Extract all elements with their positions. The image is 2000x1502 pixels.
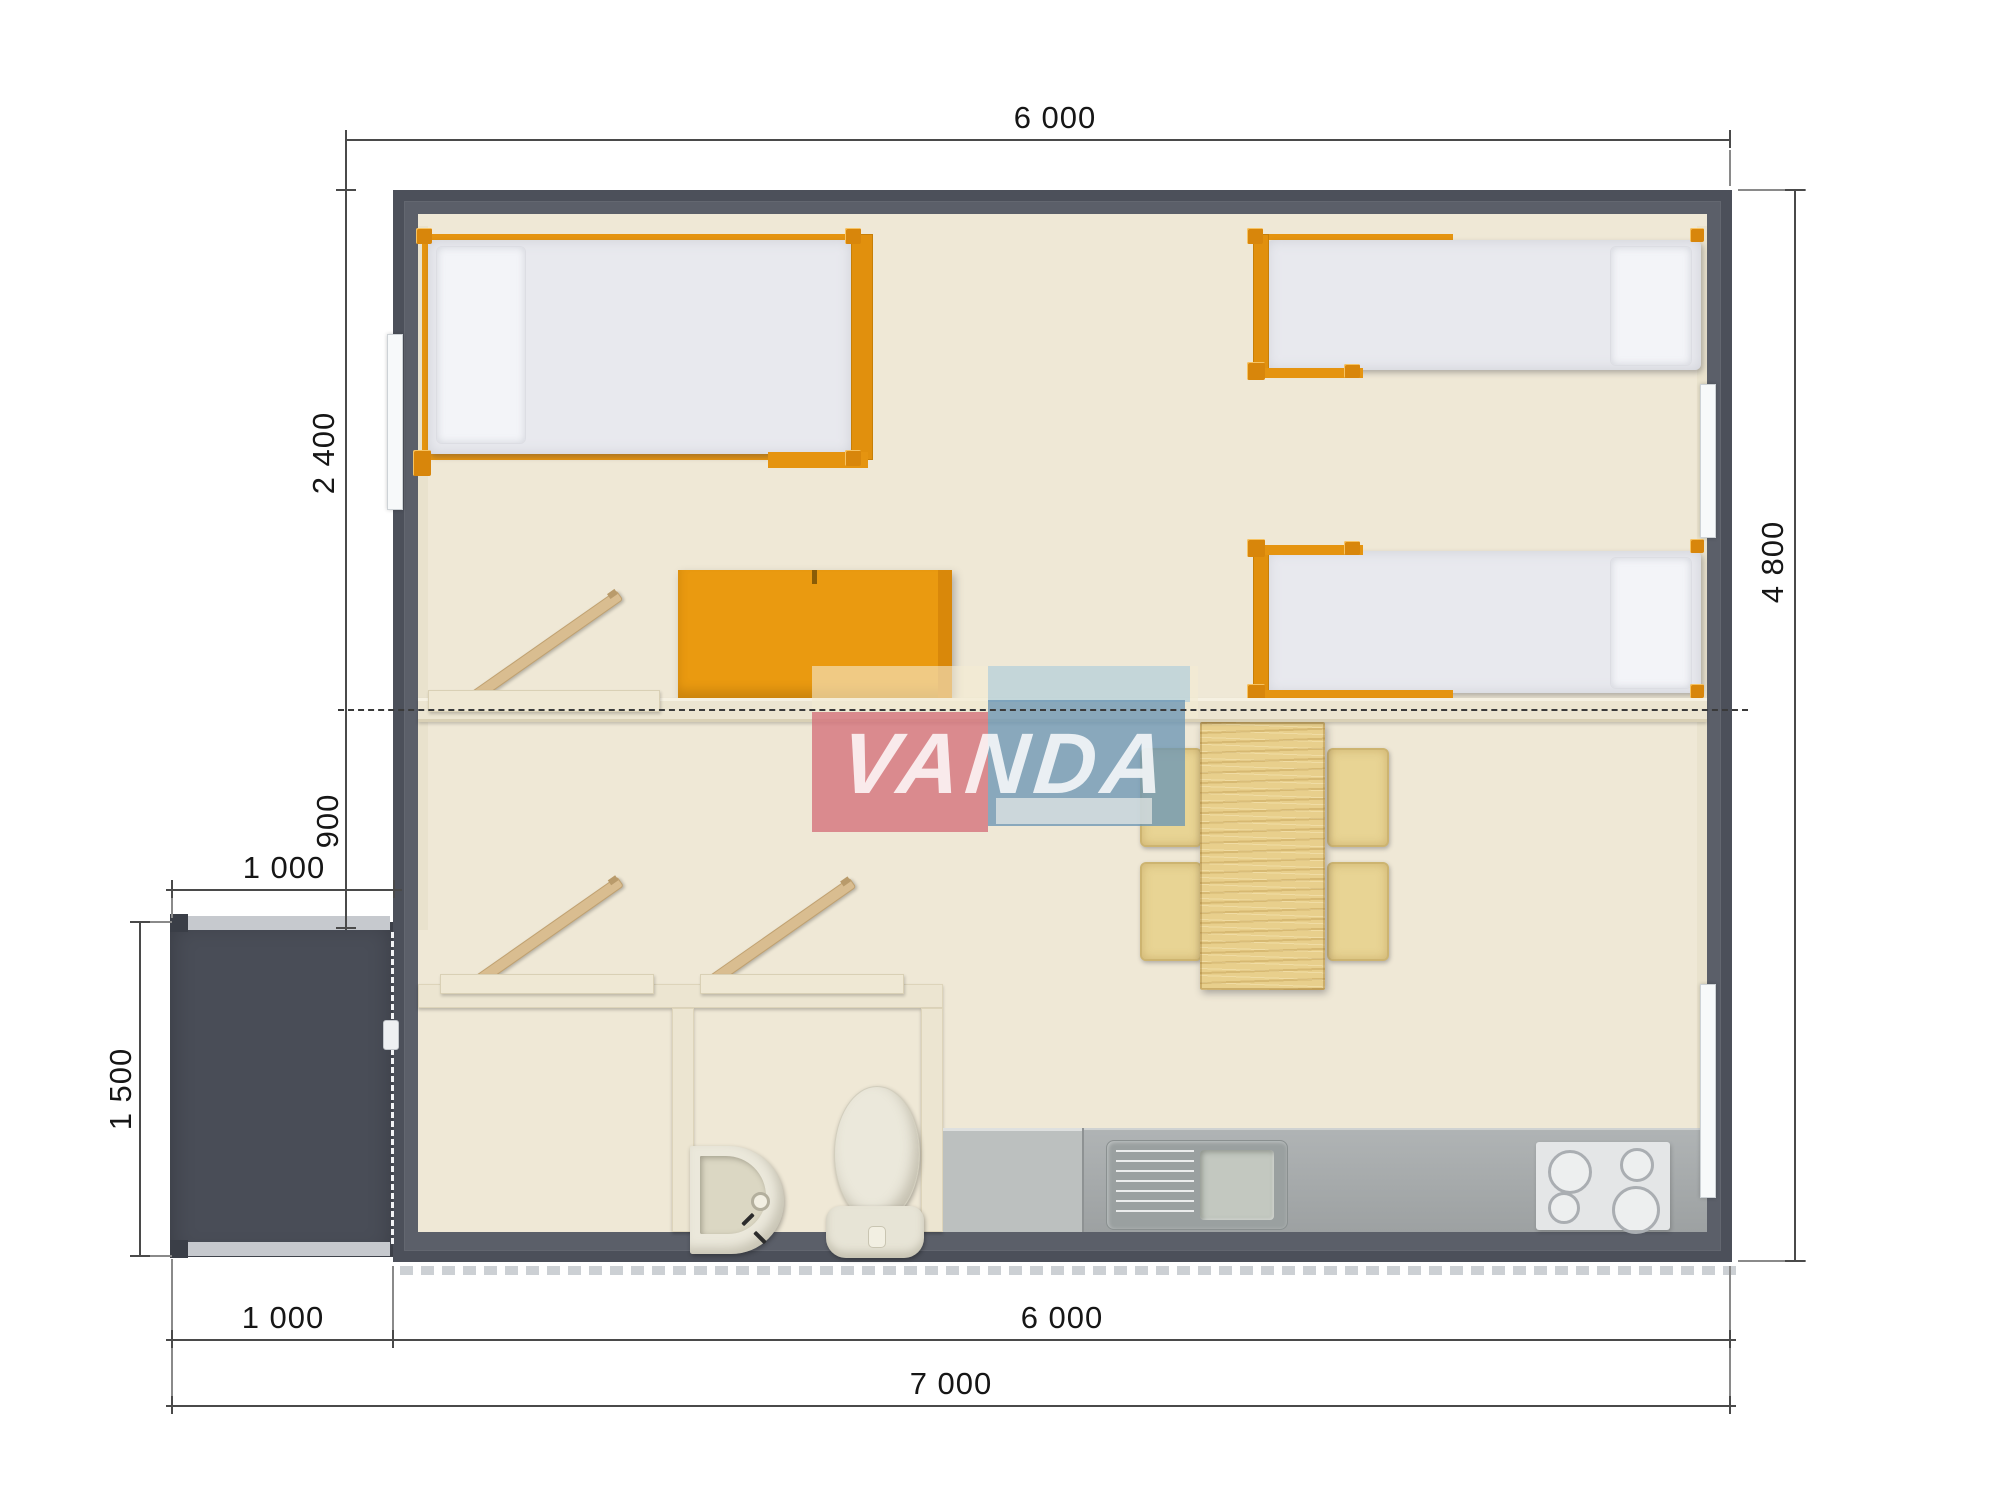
- chair: [1327, 748, 1389, 847]
- dim-line-left-chain: [345, 139, 347, 930]
- dim-tick: [171, 880, 173, 898]
- burner-icon: [1548, 1192, 1580, 1224]
- bed-post: [1247, 539, 1265, 557]
- kitchen-sink-basin: [1200, 1150, 1274, 1220]
- section-reference-dashed-line: [338, 709, 1748, 711]
- chair: [1327, 862, 1389, 961]
- porch-bottom-sill: [178, 1242, 390, 1256]
- dim-tick: [171, 1396, 173, 1414]
- right-wall-window-upper: [1700, 384, 1716, 538]
- toilet-flush-button: [868, 1226, 886, 1248]
- dim-line-right: [1794, 190, 1796, 1262]
- bed-footboard: [1253, 234, 1269, 376]
- bed-post: [1247, 228, 1263, 244]
- right-wall-window-lower: [1700, 984, 1716, 1198]
- bed-post: [845, 450, 861, 466]
- bed-footboard: [1253, 545, 1269, 700]
- dim-line-bottom-chain: [166, 1339, 1736, 1341]
- dim-tick: [130, 1255, 150, 1257]
- bed-footboard: [851, 234, 873, 460]
- dim-tick: [171, 1330, 173, 1348]
- dim-tick: [336, 927, 356, 929]
- porch-corner-post-bottom: [170, 1240, 188, 1258]
- watermark-lightblue-band: [988, 666, 1190, 702]
- dim-label-bottom-main: 6 000: [962, 1300, 1162, 1336]
- dim-tick: [1729, 130, 1731, 148]
- dim-label-porch-top-width: 1 000: [184, 850, 384, 886]
- dim-tick: [1785, 1260, 1805, 1262]
- wardrobe-handle-notch: [812, 570, 817, 584]
- dim-tick: [336, 189, 356, 191]
- burner-icon: [1548, 1150, 1592, 1194]
- entry-door-open-line: [391, 932, 394, 1244]
- bed-post: [1690, 539, 1704, 553]
- bed-rail: [1253, 690, 1453, 698]
- watermark-logo-text: VANDA: [813, 714, 1200, 814]
- dim-tick: [392, 1330, 394, 1348]
- sink-faucet: [751, 1192, 770, 1211]
- entry-door-handle: [383, 1020, 399, 1050]
- folded-bench-living-left: [440, 974, 654, 994]
- toilet: [834, 1086, 920, 1222]
- bed-post: [1344, 541, 1360, 555]
- dim-tick: [393, 880, 395, 898]
- kitchen-cabinet: [943, 1128, 1084, 1232]
- bed-post: [1247, 362, 1265, 380]
- dim-extension: [150, 921, 172, 923]
- dim-line-bottom-total: [166, 1405, 1736, 1407]
- pillow: [1610, 557, 1692, 689]
- dim-extension: [171, 898, 173, 918]
- burner-icon: [1620, 1148, 1654, 1182]
- dim-tick: [130, 921, 150, 923]
- bed-post: [413, 450, 431, 476]
- pillow: [1610, 246, 1692, 366]
- dim-line-top: [346, 139, 1730, 141]
- dim-label-top-width: 6 000: [955, 100, 1155, 136]
- dim-label-porch-left-height: 1 500: [103, 1019, 137, 1159]
- folded-bench-living-right: [700, 974, 904, 994]
- bathroom-divider-wall-right: [921, 1008, 943, 1232]
- bed-post: [1344, 364, 1360, 378]
- bottom-sill-dashes: [400, 1266, 1736, 1275]
- bed-post: [416, 228, 432, 244]
- dim-line-porch-left: [139, 922, 141, 1257]
- pillow: [436, 246, 526, 444]
- dim-label-bottom-porch: 1 000: [183, 1300, 383, 1336]
- burner-icon: [1612, 1186, 1660, 1234]
- dim-label-right-height: 4 800: [1755, 492, 1789, 632]
- bed-post: [845, 228, 861, 244]
- left-wall-window: [387, 334, 403, 510]
- entry-porch-platform: [170, 922, 393, 1257]
- dim-line-porch-top: [166, 889, 402, 891]
- kitchen-drainboard: [1116, 1150, 1194, 1220]
- porch-top-sill: [178, 916, 390, 930]
- dim-label-left-upper: 2 400: [306, 383, 340, 523]
- dim-extension: [1729, 150, 1731, 186]
- dining-table: [1200, 722, 1325, 990]
- dim-label-bottom-total: 7 000: [851, 1366, 1051, 1402]
- chair: [1140, 862, 1202, 961]
- bed-post: [1690, 228, 1704, 242]
- dim-tick: [1729, 1396, 1731, 1414]
- dim-tick: [1785, 189, 1805, 191]
- bed-post: [1690, 684, 1704, 698]
- dim-tick: [1729, 1330, 1731, 1348]
- dim-extension: [150, 1255, 172, 1257]
